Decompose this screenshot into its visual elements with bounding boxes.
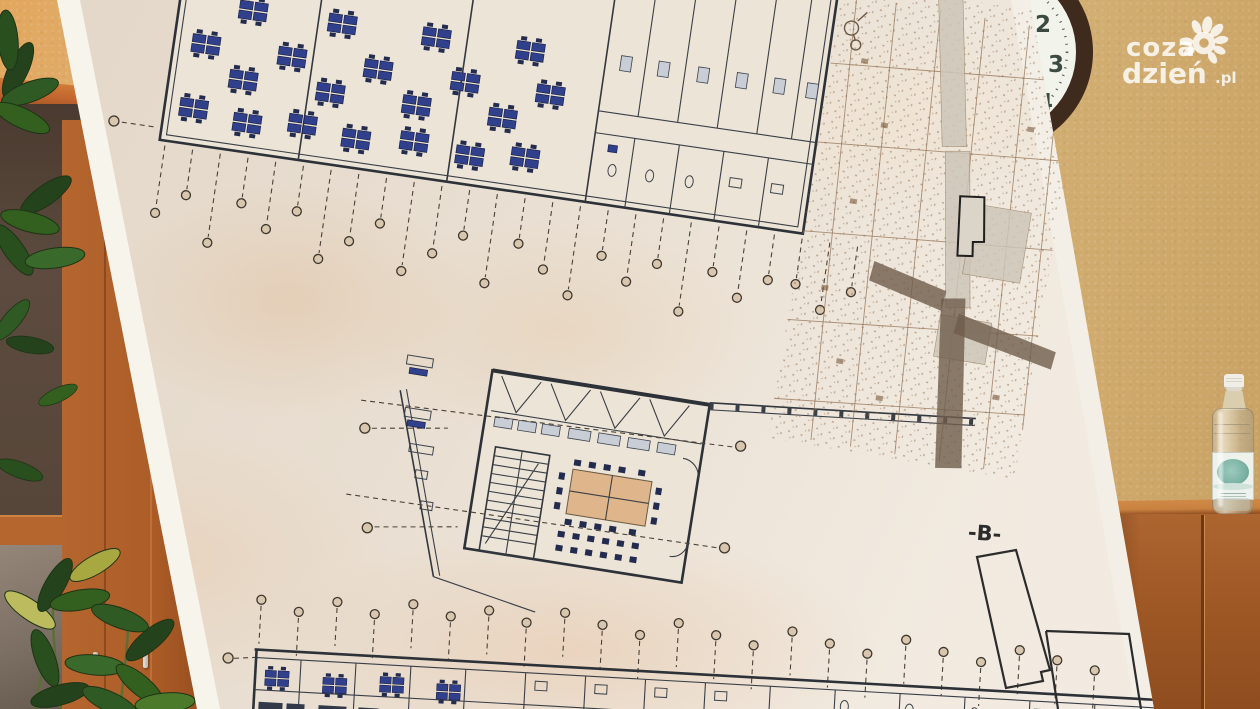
bottom-fixtures — [534, 681, 1113, 709]
section-label-b: -B- — [967, 520, 1002, 546]
floor-plan-bottom — [220, 589, 1178, 709]
clock-numeral-2: 2 — [1035, 12, 1051, 38]
bottle-ring — [1226, 387, 1242, 391]
photo-scene: 2 3 4 — [0, 0, 1260, 709]
clock-numeral-3: 3 — [1048, 52, 1064, 78]
cutoff-dense-row — [258, 702, 1088, 709]
watermark-tld: .pl — [1215, 69, 1237, 87]
sideboard-seam — [1201, 515, 1205, 709]
cozadzien-watermark: coza dzień .pl — [1116, 16, 1258, 96]
floor-plan-upper — [93, 0, 899, 341]
watermark-line2: dzień — [1122, 57, 1207, 90]
bottle-highlight — [1218, 411, 1223, 507]
bottle-label-text-lines — [1220, 493, 1246, 494]
